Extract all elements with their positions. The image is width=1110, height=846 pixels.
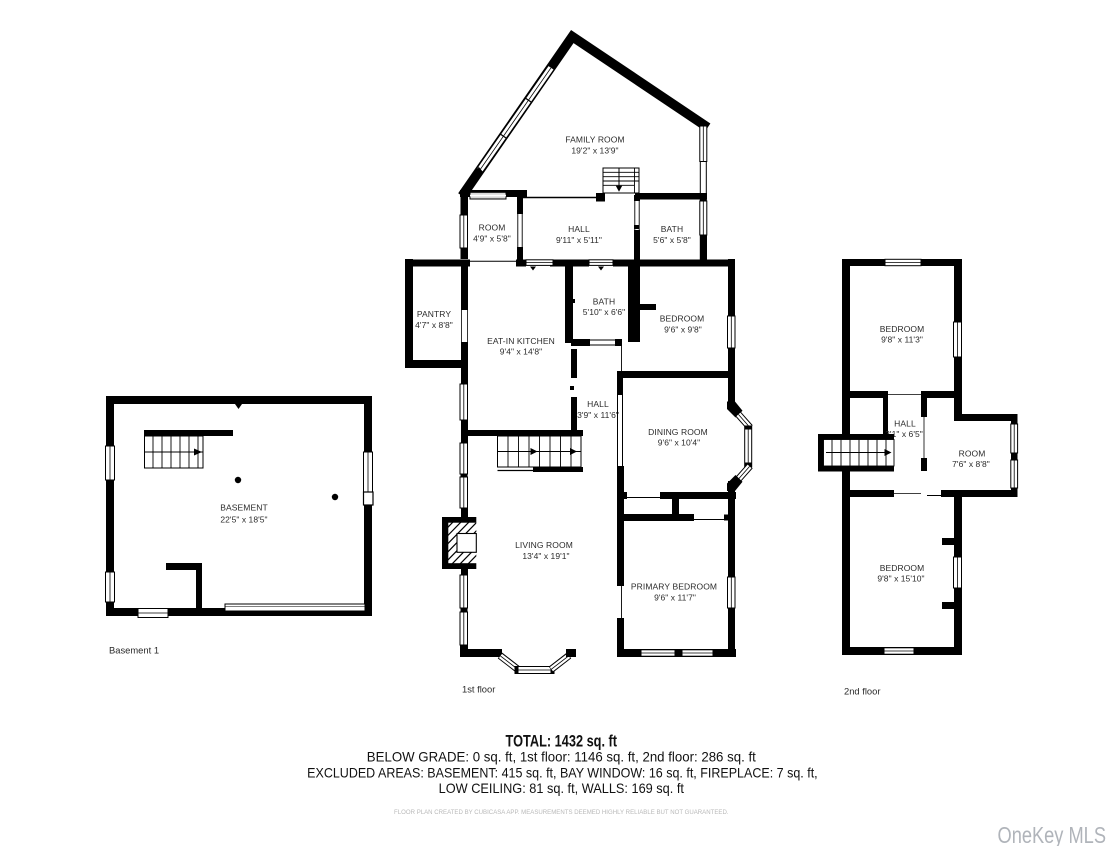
svg-text:EAT-IN KITCHEN: EAT-IN KITCHEN — [487, 336, 555, 346]
svg-text:BATH: BATH — [661, 224, 683, 234]
svg-text:BEDROOM: BEDROOM — [880, 324, 925, 334]
svg-text:4'7" x 8'8": 4'7" x 8'8" — [415, 320, 453, 330]
svg-text:ROOM: ROOM — [959, 448, 986, 458]
svg-text:BELOW GRADE: 0 sq. ft, 1st flo: BELOW GRADE: 0 sq. ft, 1st floor: 1146 s… — [367, 749, 756, 765]
svg-text:5'6" x 5'8": 5'6" x 5'8" — [653, 235, 691, 245]
svg-text:9'6" x 9'8": 9'6" x 9'8" — [664, 324, 702, 334]
svg-text:FAMILY ROOM: FAMILY ROOM — [565, 135, 624, 145]
svg-text:LOW CEILING: 81 sq. ft, WALLS:: LOW CEILING: 81 sq. ft, WALLS: 169 sq. f… — [439, 780, 684, 796]
svg-text:9'6" x 11'7": 9'6" x 11'7" — [654, 592, 696, 602]
svg-text:5'10" x 6'6": 5'10" x 6'6" — [583, 307, 626, 317]
svg-text:PANTRY: PANTRY — [417, 309, 452, 319]
svg-text:PRIMARY BEDROOM: PRIMARY BEDROOM — [631, 582, 717, 592]
svg-text:22'5" x 18'5": 22'5" x 18'5" — [220, 514, 267, 524]
svg-text:9'4" x 14'8": 9'4" x 14'8" — [500, 347, 543, 357]
svg-text:HALL: HALL — [894, 418, 916, 428]
svg-text:4'9" x 5'8": 4'9" x 5'8" — [473, 233, 511, 243]
svg-text:9'8" x 11'3": 9'8" x 11'3" — [881, 335, 923, 345]
svg-text:9'6" x 10'4": 9'6" x 10'4" — [658, 438, 701, 448]
svg-text:BATH: BATH — [593, 296, 615, 306]
svg-text:1st floor: 1st floor — [462, 684, 495, 695]
svg-text:OneKey MLS: OneKey MLS — [998, 822, 1107, 846]
svg-text:ROOM: ROOM — [479, 223, 506, 233]
svg-text:13'4" x 19'1": 13'4" x 19'1" — [522, 551, 569, 561]
svg-text:DINING ROOM: DINING ROOM — [648, 427, 708, 437]
svg-text:EXCLUDED AREAS: BASEMENT: 415: EXCLUDED AREAS: BASEMENT: 415 sq. ft, BA… — [307, 765, 818, 781]
svg-text:HALL: HALL — [587, 399, 609, 409]
svg-text:9'11" x 5'11": 9'11" x 5'11" — [556, 235, 602, 245]
svg-text:BEDROOM: BEDROOM — [880, 563, 925, 573]
svg-text:Basement 1: Basement 1 — [109, 644, 159, 655]
svg-text:BEDROOM: BEDROOM — [660, 314, 705, 324]
svg-text:7'6" x 8'8": 7'6" x 8'8" — [952, 459, 990, 469]
svg-text:3'9" x 11'6": 3'9" x 11'6" — [577, 410, 619, 420]
svg-text:FLOOR PLAN CREATED BY CUBICASA: FLOOR PLAN CREATED BY CUBICASA APP. MEAS… — [394, 809, 729, 816]
svg-text:9'8" x 15'10": 9'8" x 15'10" — [877, 574, 924, 584]
svg-text:2nd floor: 2nd floor — [844, 686, 880, 697]
svg-text:HALL: HALL — [568, 224, 590, 234]
svg-text:LIVING ROOM: LIVING ROOM — [515, 540, 573, 550]
svg-text:19'2" x 13'9": 19'2" x 13'9" — [571, 145, 618, 155]
svg-text:BASEMENT: BASEMENT — [220, 503, 268, 513]
